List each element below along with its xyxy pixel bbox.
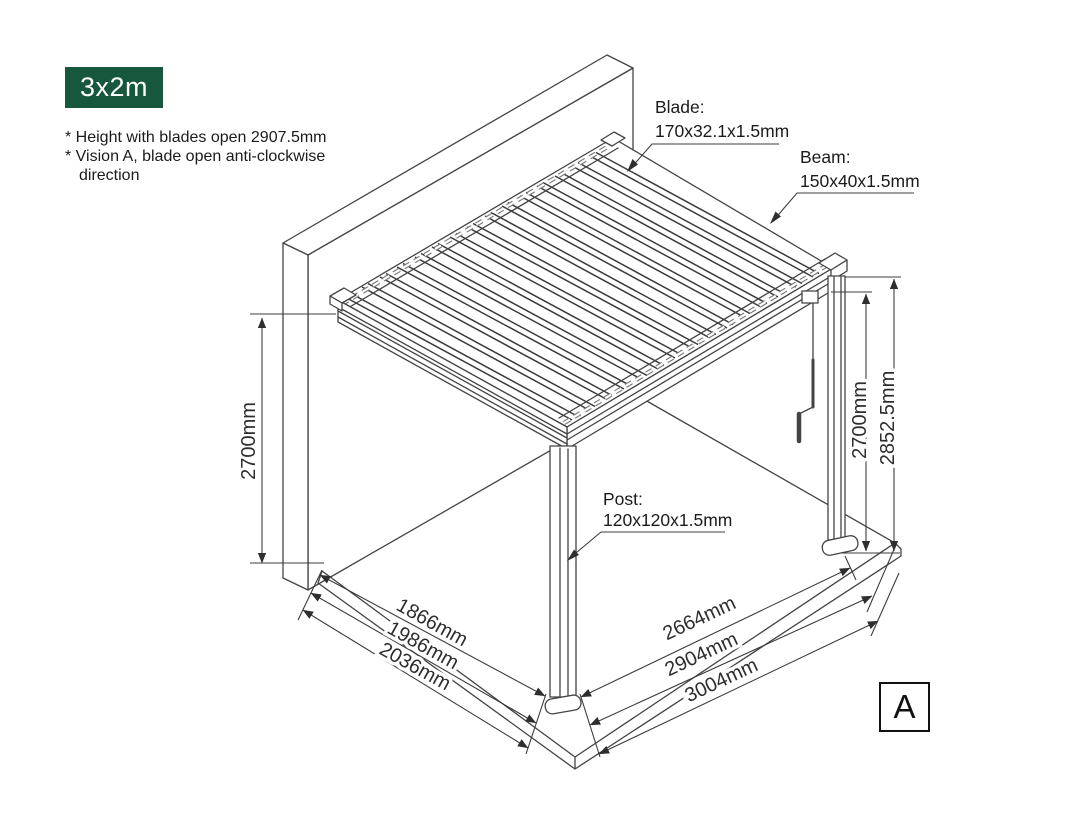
post-callout: Post: 120x120x1.5mm [567, 489, 732, 561]
dimension-group-bottom-left: 1866mm 1986mm 2036mm [298, 570, 546, 754]
technical-drawing-canvas: 3x2m * Height with blades open 2907.5mm … [0, 0, 1080, 831]
beam-label-spec: 150x40x1.5mm [800, 171, 920, 191]
post-label-title: Post: [603, 489, 643, 509]
dim-left-height-text: 2700mm [238, 402, 260, 480]
view-marker-letter: A [893, 688, 915, 726]
beam-callout: Beam: 150x40x1.5mm [770, 147, 920, 224]
dim-right-height-inner-text: 2700mm [849, 381, 871, 459]
blade-label-spec: 170x32.1x1.5mm [655, 121, 789, 141]
crank-handle [799, 291, 818, 441]
beam-label-title: Beam: [800, 147, 851, 167]
wall-end-face [283, 243, 308, 590]
crank-mount [802, 291, 818, 303]
blade-label-title: Blade: [655, 97, 705, 117]
dim-right-height-outer-text: 2852.5mm [877, 371, 899, 466]
dimension-group-bottom-right: 2664mm 2904mm 3004mm [580, 547, 899, 757]
view-marker-box: A [879, 682, 930, 732]
post-label-spec: 120x120x1.5mm [603, 510, 732, 530]
front-post [544, 446, 582, 715]
